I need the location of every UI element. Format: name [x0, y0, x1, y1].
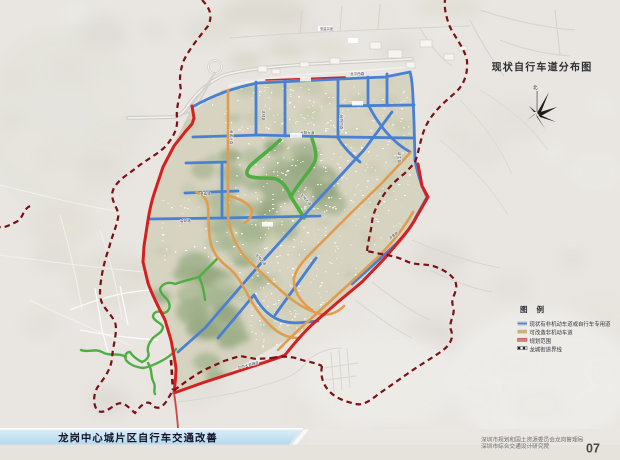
svg-text:深圳市综合交通设计研究院: 深圳市综合交通设计研究院 — [481, 442, 550, 450]
svg-text:龙翔大道: 龙翔大道 — [300, 130, 315, 135]
svg-text:碧新路: 碧新路 — [180, 218, 191, 223]
svg-text:深圳市规划和国土资源委员会龙岗管理局: 深圳市规划和国土资源委员会龙岗管理局 — [481, 436, 584, 444]
svg-text:龙城街道界线: 龙城街道界线 — [530, 346, 563, 354]
svg-text:惠盐高速: 惠盐高速 — [320, 26, 334, 31]
svg-text:新生路: 新生路 — [397, 152, 402, 163]
svg-text:现状有非机动车道或自行车专用道: 现状有非机动车道或自行车专用道 — [530, 320, 611, 328]
svg-text:黄阁北路: 黄阁北路 — [229, 130, 234, 145]
svg-text:爱南路: 爱南路 — [200, 191, 211, 196]
svg-text:龙平西路: 龙平西路 — [350, 71, 365, 76]
svg-text:现状自行车道分布图: 现状自行车道分布图 — [492, 61, 593, 74]
svg-text:规划范围: 规划范围 — [530, 337, 552, 345]
svg-text:北: 北 — [533, 84, 538, 91]
svg-text:可改造非机动车道: 可改造非机动车道 — [530, 329, 574, 337]
svg-text:清林路: 清林路 — [261, 110, 266, 121]
svg-text:07: 07 — [586, 442, 600, 456]
svg-text:图例: 图例 — [520, 304, 553, 314]
svg-text:植物园路: 植物园路 — [339, 115, 344, 130]
svg-text:龙岗中心城片区自行车交通改善: 龙岗中心城片区自行车交通改善 — [57, 431, 218, 444]
